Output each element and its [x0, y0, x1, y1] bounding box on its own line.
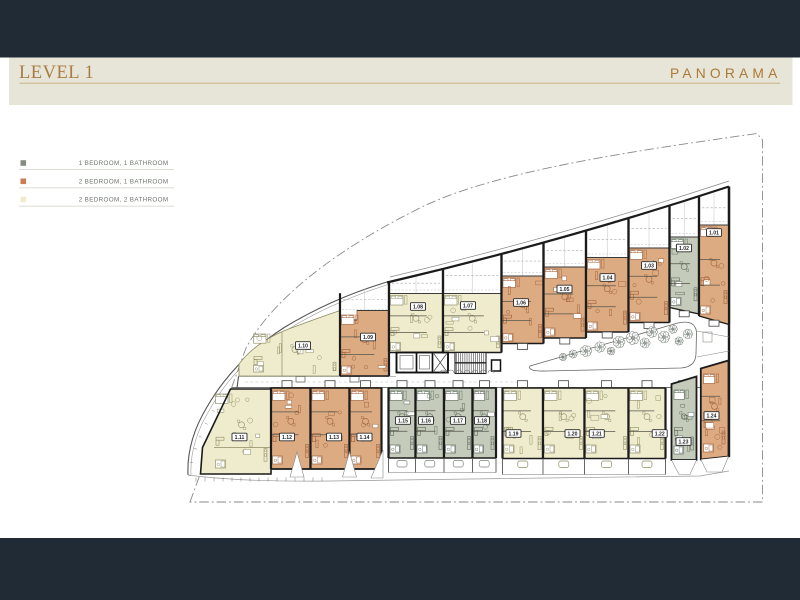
svg-text:1.09: 1.09 — [363, 335, 373, 341]
svg-text:1.11: 1.11 — [235, 435, 245, 441]
svg-text:1.02: 1.02 — [679, 246, 689, 252]
svg-text:1.22: 1.22 — [655, 431, 665, 437]
svg-text:1.08: 1.08 — [413, 304, 423, 310]
svg-text:1.06: 1.06 — [516, 300, 526, 306]
svg-text:1.12: 1.12 — [282, 435, 292, 441]
svg-text:1.18: 1.18 — [477, 418, 487, 424]
svg-text:1 BEDROOM, 1 BATHROOM: 1 BEDROOM, 1 BATHROOM — [79, 160, 169, 167]
svg-text:1.01: 1.01 — [709, 230, 719, 236]
svg-text:1.20: 1.20 — [568, 431, 578, 437]
svg-text:2 BEDROOM, 1 BATHROOM: 2 BEDROOM, 1 BATHROOM — [79, 179, 169, 186]
svg-text:1.03: 1.03 — [644, 263, 654, 269]
svg-text:PANORAMA: PANORAMA — [670, 66, 782, 81]
svg-text:1.21: 1.21 — [592, 431, 602, 437]
svg-text:1.23: 1.23 — [679, 439, 689, 445]
svg-text:LEVEL 1: LEVEL 1 — [19, 63, 94, 83]
svg-text:1.16: 1.16 — [421, 418, 431, 424]
svg-text:1.10: 1.10 — [298, 343, 308, 349]
svg-text:1.24: 1.24 — [707, 413, 717, 419]
svg-text:1.15: 1.15 — [398, 418, 408, 424]
svg-text:1.13: 1.13 — [329, 435, 339, 441]
svg-text:1.14: 1.14 — [360, 435, 370, 441]
svg-text:1.19: 1.19 — [509, 431, 519, 437]
svg-text:1.07: 1.07 — [463, 303, 473, 309]
svg-text:1.17: 1.17 — [453, 418, 463, 424]
svg-text:1.04: 1.04 — [603, 275, 613, 281]
svg-text:1.05: 1.05 — [560, 287, 570, 293]
svg-text:2 BEDROOM, 2 BATHROOM: 2 BEDROOM, 2 BATHROOM — [79, 197, 169, 204]
